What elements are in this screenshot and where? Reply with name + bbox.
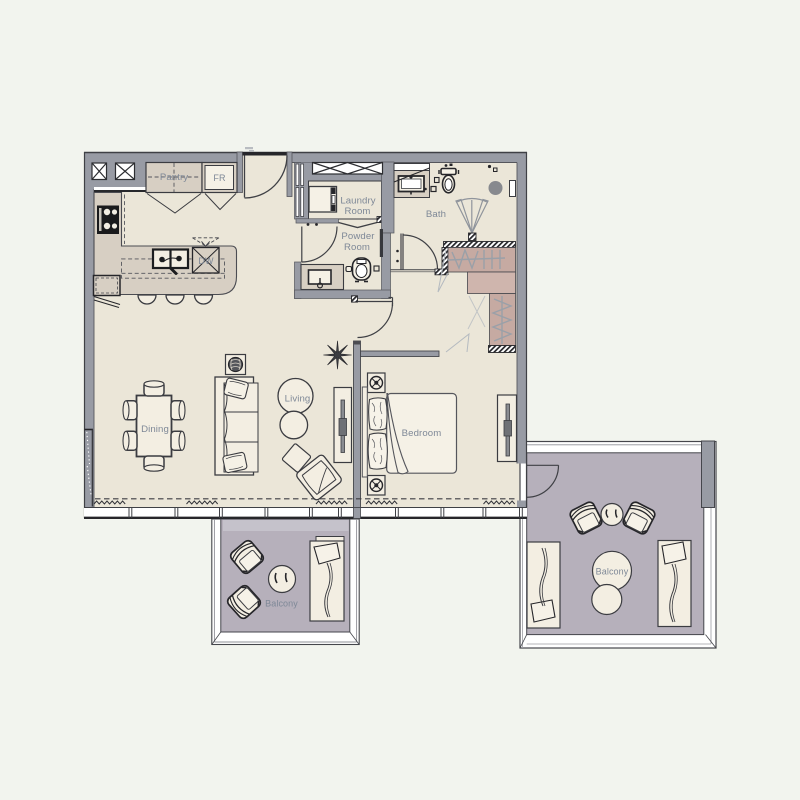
svg-text:Laundry: Laundry [340,196,375,207]
svg-text:Room: Room [344,242,370,253]
svg-text:Powder: Powder [341,231,375,242]
svg-text:Bath: Bath [426,209,446,220]
svg-text:Room: Room [345,206,371,217]
svg-text:FR: FR [213,173,226,183]
svg-text:Balcony: Balcony [265,599,298,609]
svg-text:Living: Living [285,394,311,405]
svg-text:Dining: Dining [141,424,169,435]
svg-text:Pantry: Pantry [160,172,188,183]
svg-text:Bedroom: Bedroom [402,428,442,439]
svg-text:DW: DW [198,256,214,266]
svg-text:Balcony: Balcony [596,567,629,577]
